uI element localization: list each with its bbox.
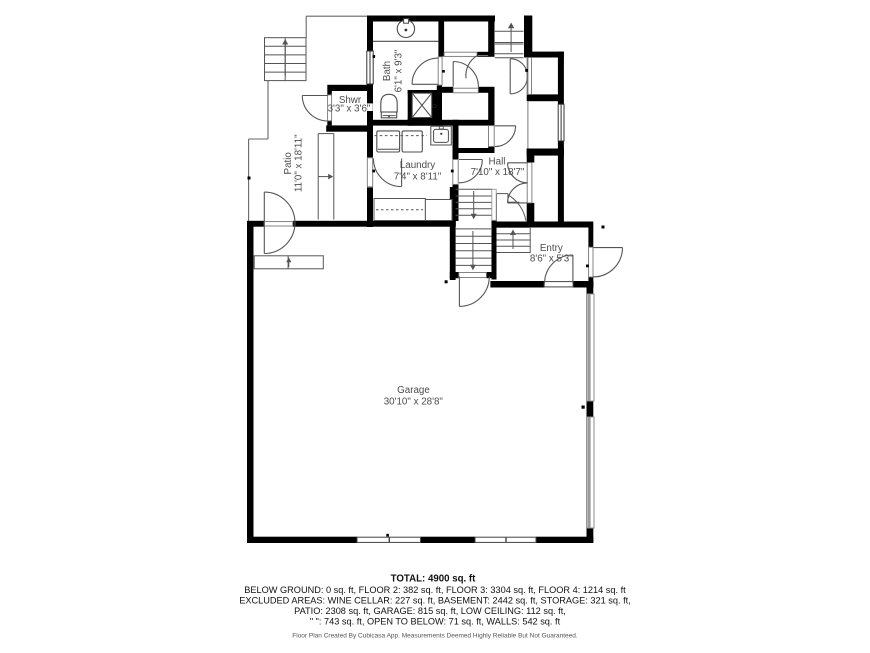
svg-text:11'0" x 18'11": 11'0" x 18'11" xyxy=(293,134,304,192)
svg-text:3'3" x 3'6": 3'3" x 3'6" xyxy=(328,104,371,115)
svg-text:PATIO: 2308 sq. ft, GARAGE: 81: PATIO: 2308 sq. ft, GARAGE: 815 sq. ft, … xyxy=(294,606,566,616)
svg-text:6'1" x 9'3": 6'1" x 9'3" xyxy=(394,49,405,92)
svg-text:BELOW GROUND: 0 sq. ft, FLOOR: BELOW GROUND: 0 sq. ft, FLOOR 2: 382 sq.… xyxy=(244,585,626,595)
svg-text:7'10" x 18'7": 7'10" x 18'7" xyxy=(471,167,525,178)
svg-text:Laundry: Laundry xyxy=(400,160,436,171)
svg-text:30'10" x 28'8": 30'10" x 28'8" xyxy=(384,396,444,407)
svg-text:EXCLUDED AREAS: WINE CELLAR: 2: EXCLUDED AREAS: WINE CELLAR: 227 sq. ft,… xyxy=(239,595,630,605)
svg-text:TOTAL: 4900 sq. ft: TOTAL: 4900 sq. ft xyxy=(391,574,476,585)
svg-text:Garage: Garage xyxy=(397,385,430,396)
svg-text:Floor Plan Created By Cubicasa: Floor Plan Created By Cubicasa App. Meas… xyxy=(292,632,578,639)
svg-text:Entry: Entry xyxy=(540,243,563,254)
svg-text:Bath: Bath xyxy=(382,61,393,81)
svg-text:D: D xyxy=(433,104,439,108)
svg-text:8'6" x 5'3": 8'6" x 5'3" xyxy=(530,254,573,265)
svg-text:7'4" x 8'11": 7'4" x 8'11" xyxy=(394,171,442,182)
svg-text:" ": 743 sq. ft, OPEN TO BELOW: " ": 743 sq. ft, OPEN TO BELOW: 71 sq. f… xyxy=(310,616,561,626)
